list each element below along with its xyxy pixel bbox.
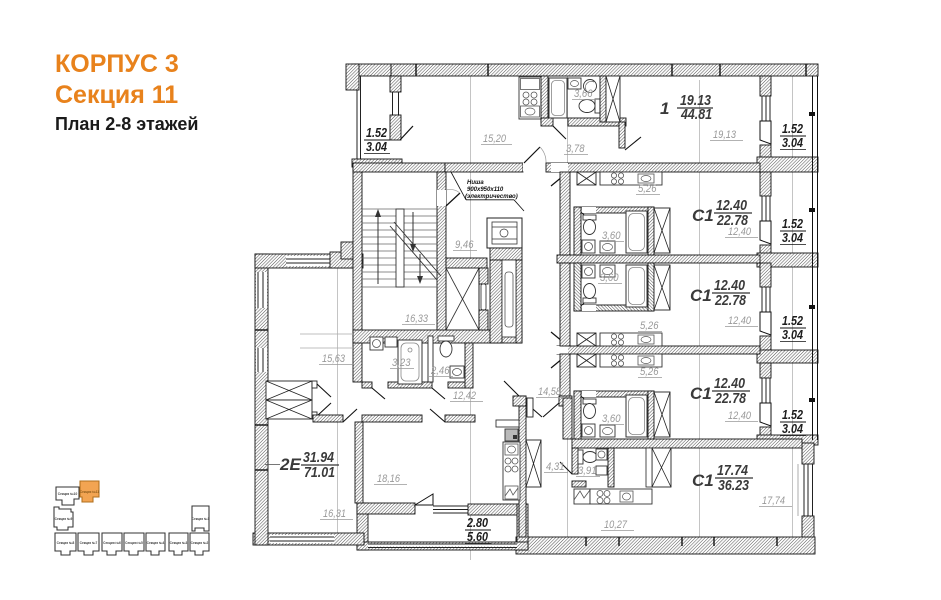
svg-text:Секция №2: Секция №2 xyxy=(191,541,209,545)
svg-text:Секция №9: Секция №9 xyxy=(55,517,73,521)
svg-text:Секция №5: Секция №5 xyxy=(125,541,143,545)
svg-text:22.78: 22.78 xyxy=(716,212,748,229)
svg-text:17,74: 17,74 xyxy=(762,495,785,507)
svg-text:5,26: 5,26 xyxy=(640,366,659,378)
svg-text:3.04: 3.04 xyxy=(782,421,804,436)
svg-text:Секция №6: Секция №6 xyxy=(103,541,121,545)
svg-text:С1: С1 xyxy=(690,286,712,305)
svg-text:12,42: 12,42 xyxy=(453,390,476,402)
svg-text:3.04: 3.04 xyxy=(782,230,804,245)
svg-text:С1: С1 xyxy=(692,206,714,225)
svg-text:Секция №3: Секция №3 xyxy=(170,541,188,545)
svg-text:3.04: 3.04 xyxy=(366,139,388,154)
svg-text:5.60: 5.60 xyxy=(467,529,489,544)
svg-text:22.78: 22.78 xyxy=(714,292,746,309)
svg-text:3.04: 3.04 xyxy=(782,327,804,342)
svg-text:Секция №7: Секция №7 xyxy=(80,541,98,545)
svg-text:Секция №8: Секция №8 xyxy=(57,541,75,545)
svg-text:10,27: 10,27 xyxy=(604,519,628,531)
svg-text:19,13: 19,13 xyxy=(713,129,737,141)
svg-text:С1: С1 xyxy=(690,384,712,403)
svg-text:Секция 11: Секция 11 xyxy=(55,81,178,109)
svg-text:1.52: 1.52 xyxy=(366,125,388,140)
svg-text:5,26: 5,26 xyxy=(638,183,657,195)
svg-text:15,20: 15,20 xyxy=(483,133,507,145)
svg-text:1.52: 1.52 xyxy=(782,216,804,231)
svg-text:Секция №4: Секция №4 xyxy=(147,541,165,545)
svg-text:900х950х110: 900х950х110 xyxy=(467,187,504,193)
svg-text:3,60: 3,60 xyxy=(602,230,621,242)
svg-text:5,26: 5,26 xyxy=(640,320,659,332)
svg-text:Ниша: Ниша xyxy=(467,180,484,186)
svg-text:Секция №10: Секция №10 xyxy=(58,492,78,496)
svg-text:12,40: 12,40 xyxy=(728,315,752,327)
svg-text:9,46: 9,46 xyxy=(455,239,474,251)
svg-text:44.81: 44.81 xyxy=(680,106,712,123)
svg-text:15,63: 15,63 xyxy=(322,353,346,365)
svg-text:3,78: 3,78 xyxy=(566,143,585,155)
svg-text:18,16: 18,16 xyxy=(377,473,401,485)
svg-text:22.78: 22.78 xyxy=(714,390,746,407)
svg-text:1.52: 1.52 xyxy=(782,407,804,422)
svg-text:Секция №11: Секция №11 xyxy=(80,490,99,494)
svg-text:1: 1 xyxy=(660,99,669,118)
svg-text:12,40: 12,40 xyxy=(728,410,752,422)
svg-text:16,33: 16,33 xyxy=(405,313,429,325)
svg-text:4,31: 4,31 xyxy=(546,461,565,473)
svg-text:3,91: 3,91 xyxy=(578,465,597,477)
svg-text:2,46: 2,46 xyxy=(430,365,450,377)
svg-text:С1: С1 xyxy=(692,471,714,490)
svg-text:2.80: 2.80 xyxy=(466,515,488,530)
svg-text:3,66: 3,66 xyxy=(574,88,593,100)
svg-text:1.52: 1.52 xyxy=(782,121,804,136)
svg-text:1.52: 1.52 xyxy=(782,313,804,328)
svg-text:16,31: 16,31 xyxy=(323,508,346,520)
svg-text:Секция №1: Секция №1 xyxy=(192,517,210,521)
svg-text:3,60: 3,60 xyxy=(602,413,621,425)
svg-text:71.01: 71.01 xyxy=(304,464,335,481)
svg-text:(электричество): (электричество) xyxy=(465,194,518,200)
svg-text:2Е: 2Е xyxy=(279,455,301,474)
svg-text:3.04: 3.04 xyxy=(782,135,804,150)
svg-text:План 2-8 этажей: План 2-8 этажей xyxy=(55,114,198,134)
svg-text:14,58: 14,58 xyxy=(538,386,562,398)
svg-text:3,23: 3,23 xyxy=(392,357,411,369)
svg-text:КОРПУС 3: КОРПУС 3 xyxy=(55,50,179,78)
svg-text:3,60: 3,60 xyxy=(600,272,619,284)
svg-text:36.23: 36.23 xyxy=(718,477,750,494)
